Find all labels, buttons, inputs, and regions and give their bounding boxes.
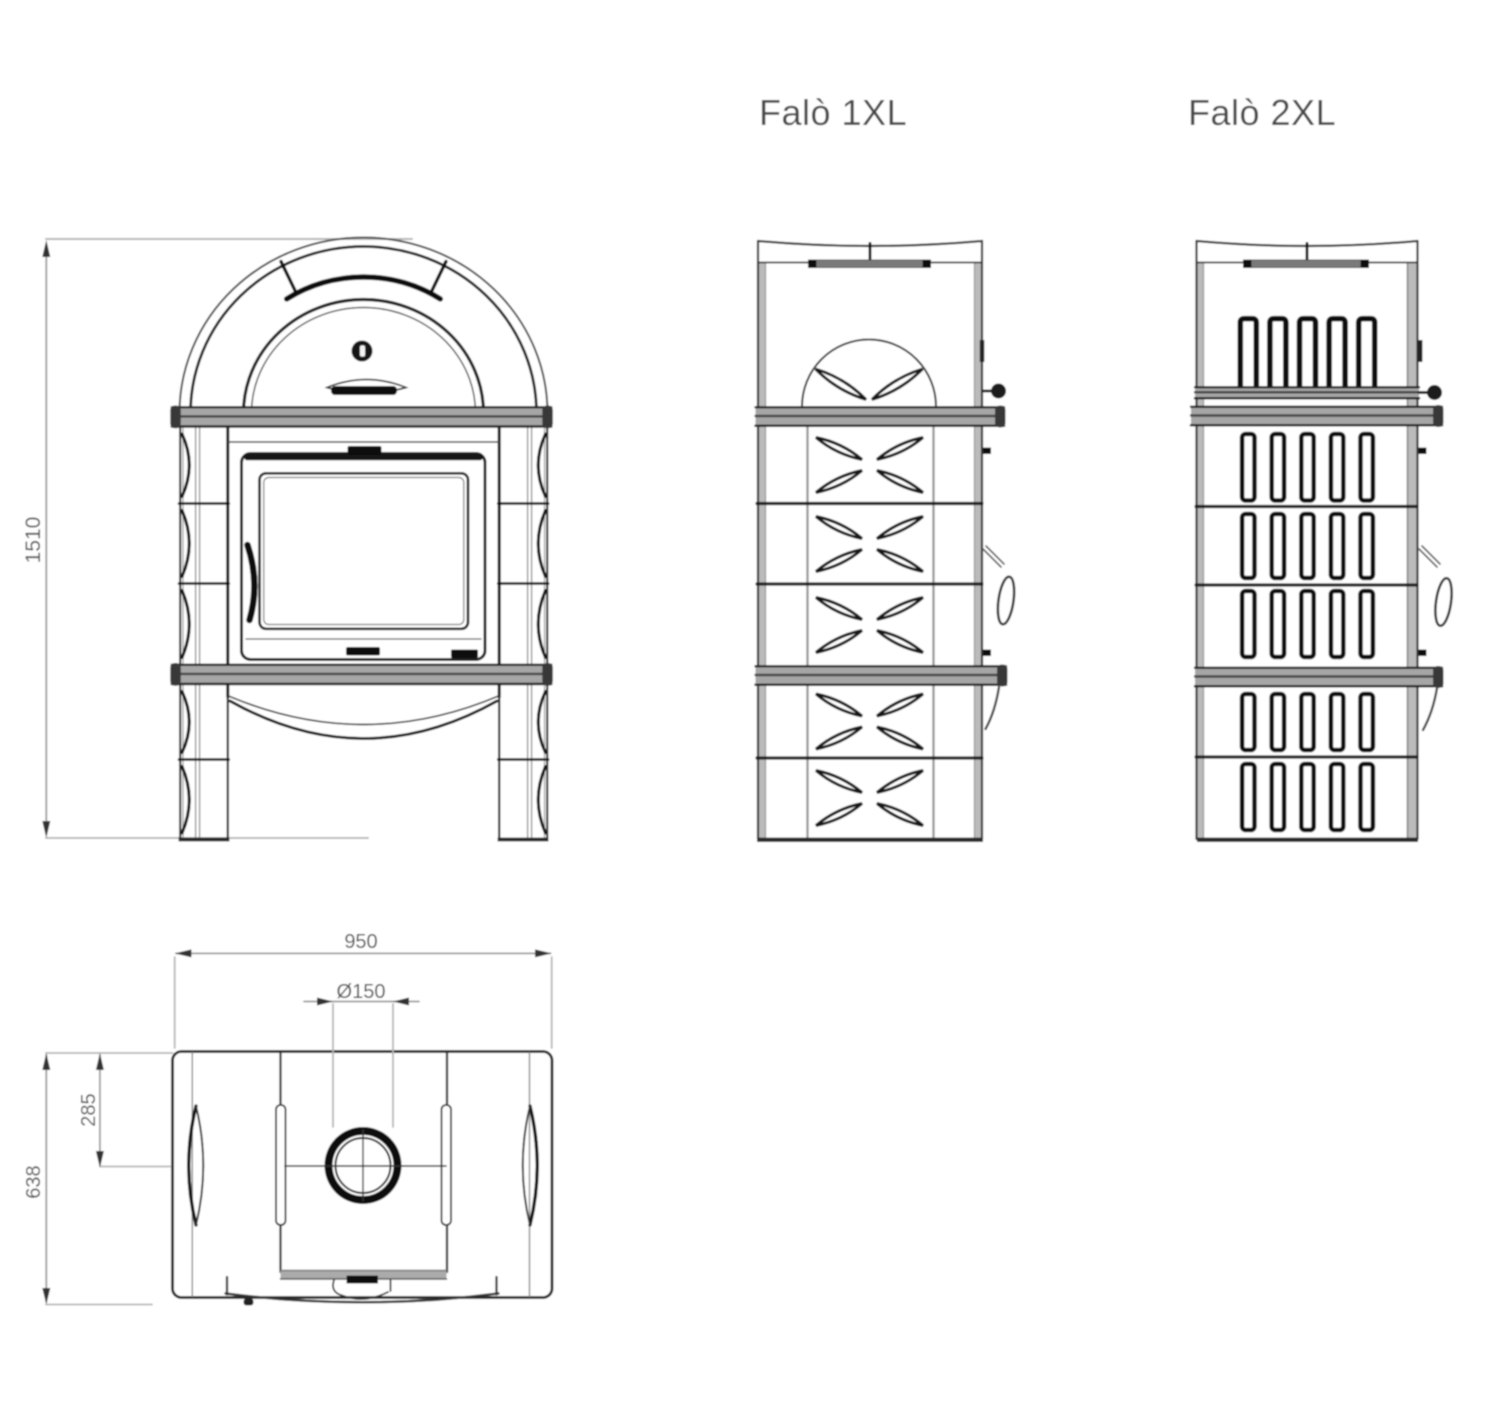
svg-text:Ø150: Ø150 — [337, 981, 386, 1003]
svg-text:950: 950 — [344, 931, 377, 953]
svg-text:638: 638 — [23, 1165, 45, 1198]
svg-text:285: 285 — [78, 1093, 100, 1126]
svg-text:1510: 1510 — [22, 517, 45, 564]
svg-text:Falò 1XL: Falò 1XL — [759, 92, 907, 133]
svg-text:Falò 2XL: Falò 2XL — [1188, 92, 1336, 133]
